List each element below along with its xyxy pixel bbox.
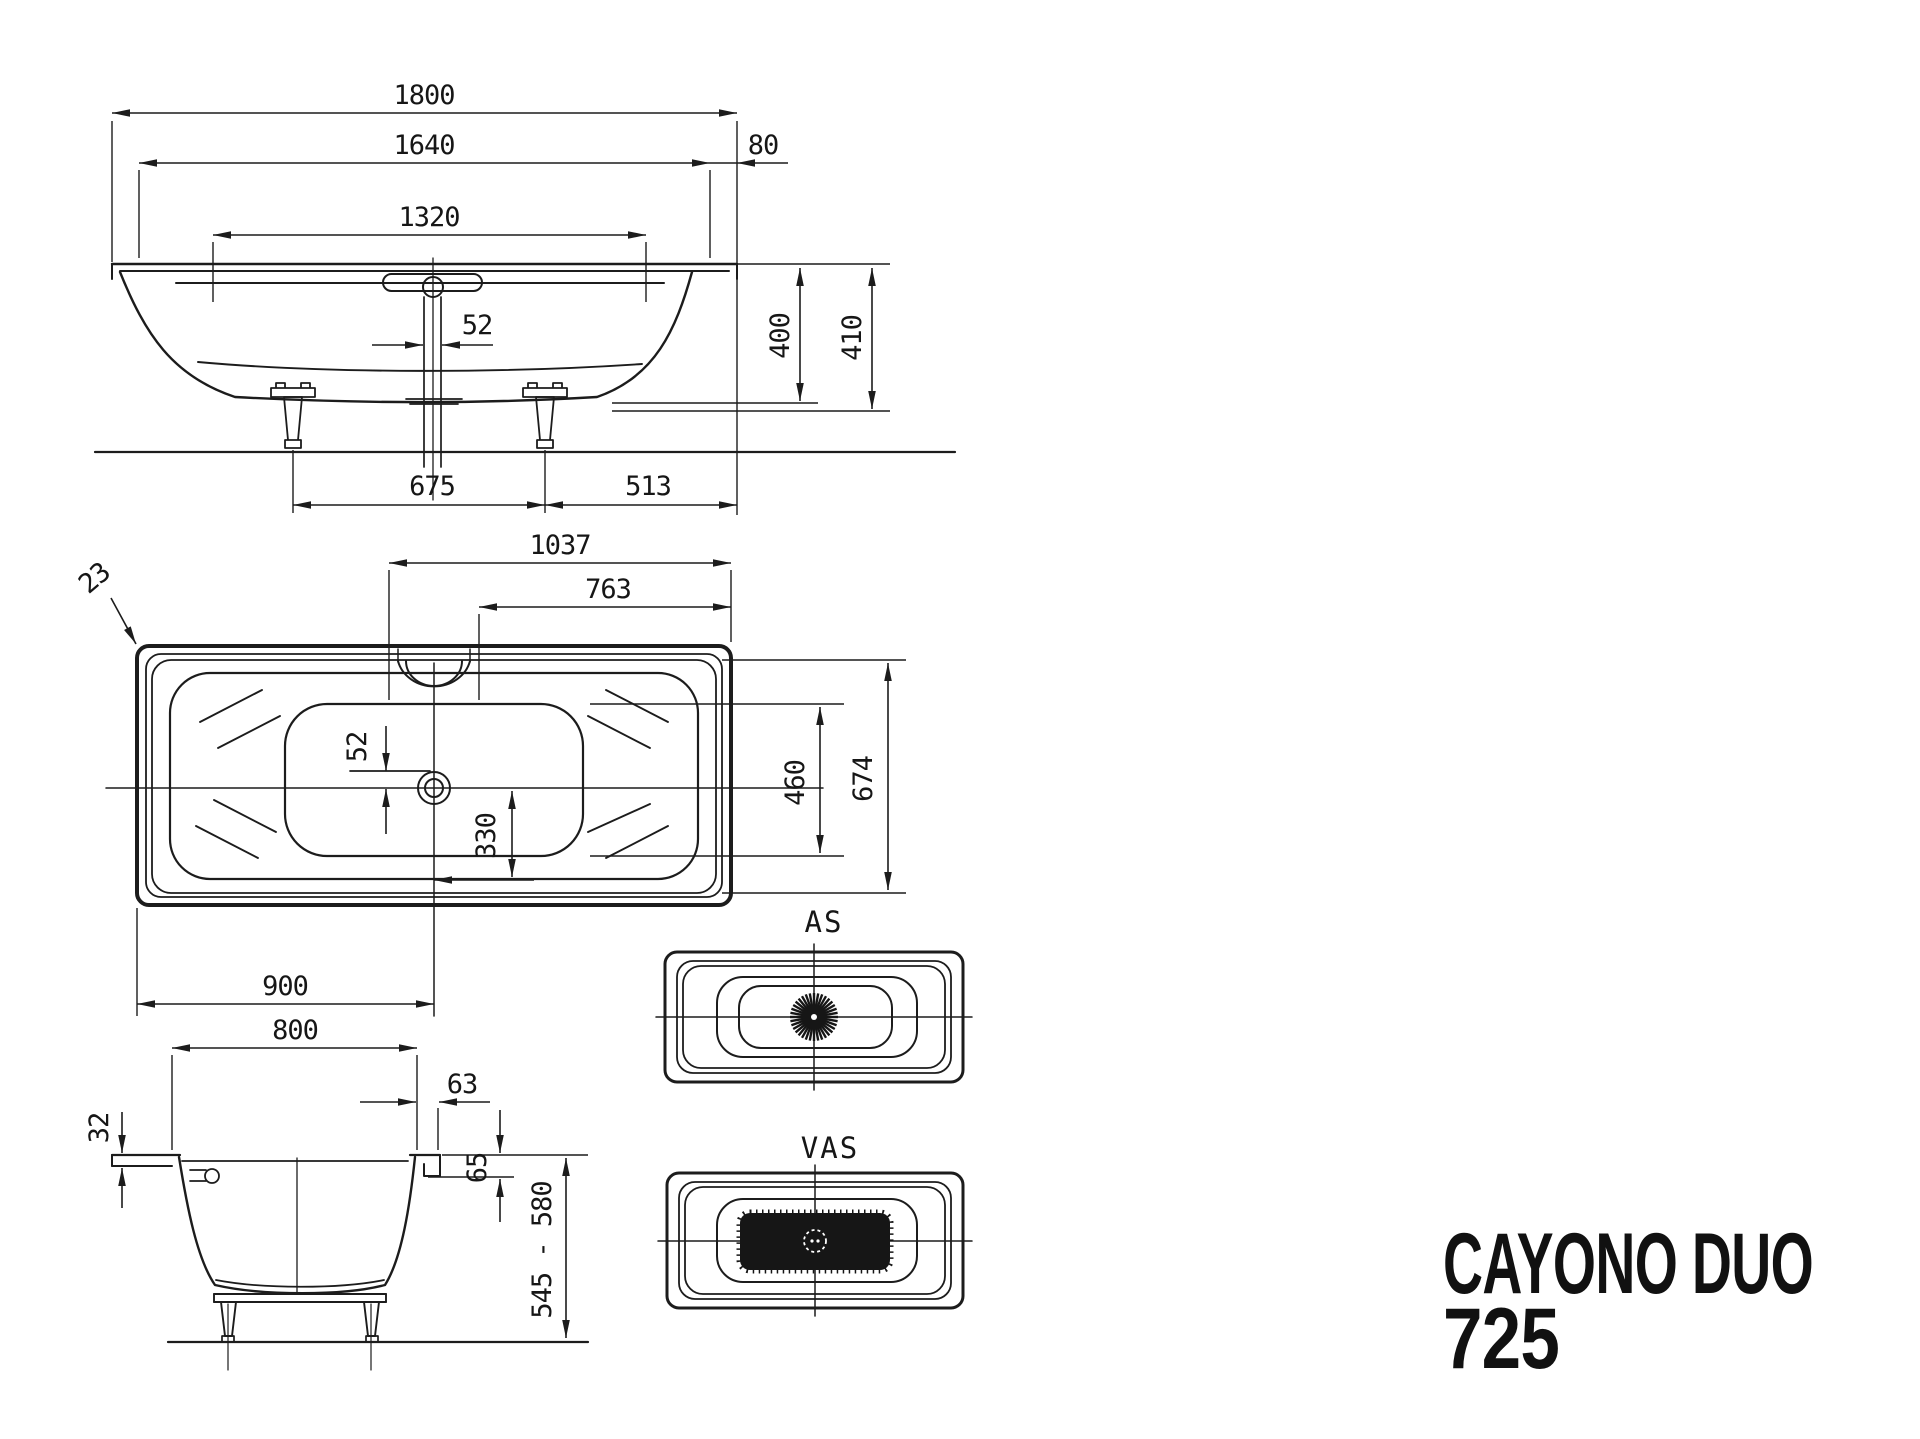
dim-label-675: 675: [409, 471, 455, 502]
side-elevation-view: 1800 1640 80 1320: [95, 80, 955, 515]
dim-label-674: 674: [848, 756, 879, 802]
dim-label-330: 330: [471, 813, 502, 859]
dim-label-52-plan: 52: [342, 732, 373, 763]
dim-label-overall-length: 1800: [393, 80, 454, 111]
end-base-frame: [214, 1294, 386, 1370]
end-section-view: 800 63 32 65: [84, 1015, 588, 1370]
dim-label-410: 410: [837, 315, 868, 361]
plan-corner-hatches: [196, 690, 668, 858]
title-block: CAYONO DUO 725: [1443, 1216, 1813, 1387]
dim-label-23: 23: [73, 557, 116, 600]
whirl-floor-area: [740, 1213, 890, 1270]
as-view-label: AS: [805, 905, 844, 939]
dim-label-80: 80: [748, 130, 779, 161]
drawing-canvas: 1800 1640 80 1320: [0, 0, 1920, 1439]
dim-label-52-side: 52: [462, 310, 493, 341]
as-variant-view: AS: [656, 905, 972, 1090]
dim-label-800: 800: [272, 1015, 318, 1046]
side-overflow-drain: [383, 258, 482, 500]
dim-label-65: 65: [462, 1153, 493, 1184]
plan-view: 1037 763 23: [73, 530, 906, 1016]
end-overflow-pipe: [190, 1169, 219, 1183]
dim-label-460: 460: [780, 760, 811, 806]
dim-label-63: 63: [447, 1069, 478, 1100]
dim-label-900: 900: [262, 971, 308, 1002]
side-tub-interior-bottom: [198, 362, 642, 371]
vas-view-label: VAS: [801, 1131, 859, 1165]
dim-label-400: 400: [765, 313, 796, 359]
end-rim: [112, 1155, 440, 1176]
vas-variant-view: VAS: [658, 1131, 972, 1316]
product-model-number: 725: [1443, 1291, 1559, 1387]
dim-label-545-580: 545 - 580: [527, 1181, 558, 1318]
dim-label-1640: 1640: [393, 130, 454, 161]
dim-label-1320: 1320: [398, 202, 459, 233]
dim-label-1037: 1037: [529, 530, 590, 561]
dim-label-32: 32: [84, 1113, 115, 1144]
side-foot-left: [271, 383, 315, 448]
side-foot-right: [523, 383, 567, 448]
dim-label-513: 513: [625, 471, 671, 502]
technical-drawing-page: 1800 1640 80 1320: [0, 0, 1920, 1439]
air-jet-starburst-icon: [790, 993, 838, 1041]
dim-label-763: 763: [585, 574, 631, 605]
